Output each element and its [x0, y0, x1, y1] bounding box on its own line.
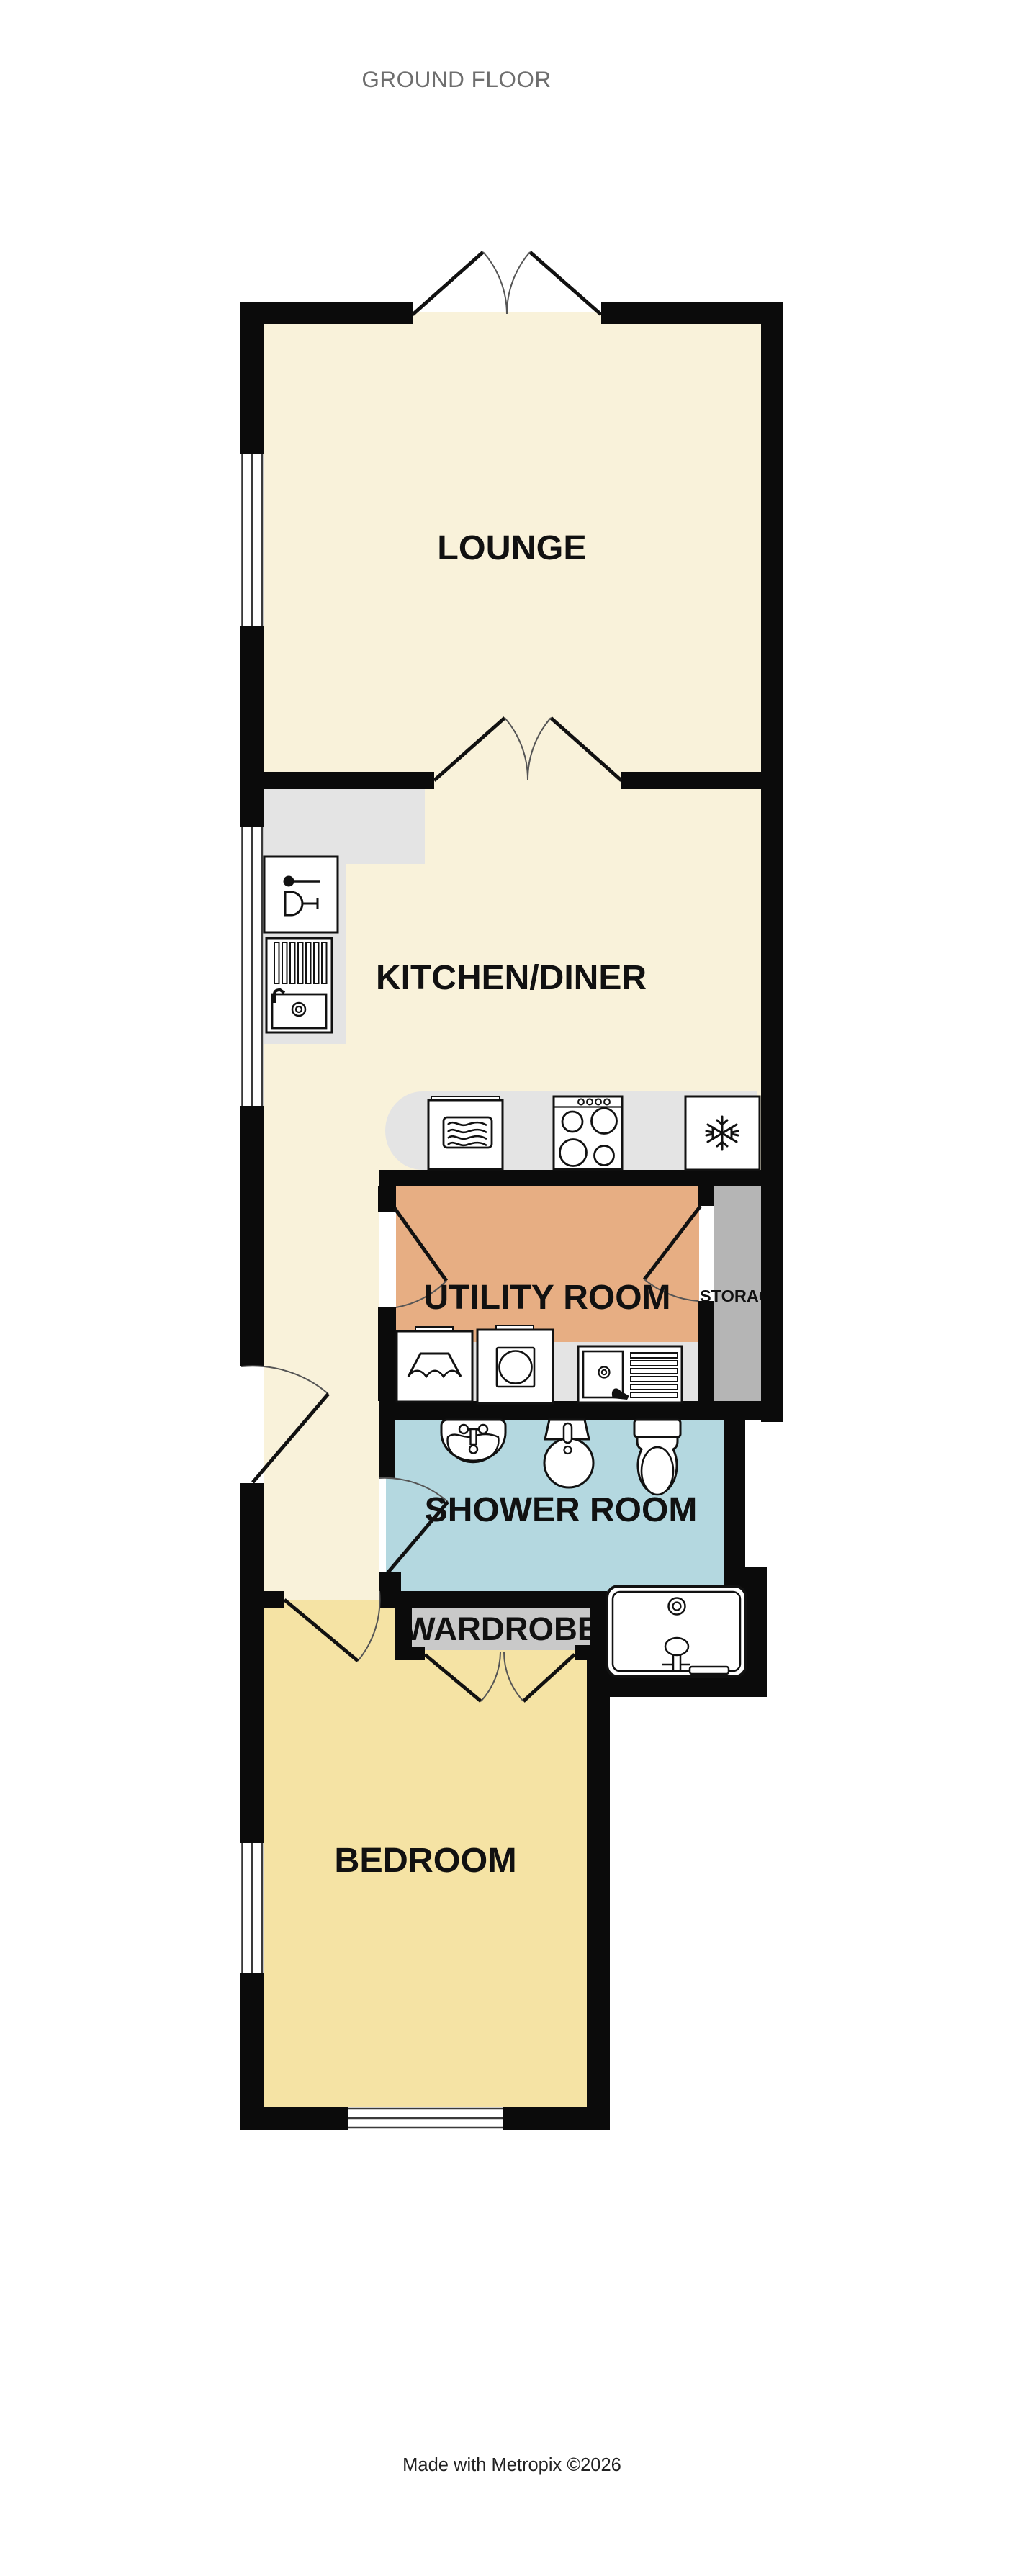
svg-text:KITCHEN/DINER: KITCHEN/DINER: [376, 959, 647, 997]
svg-text:SHOWER ROOM: SHOWER ROOM: [425, 1491, 698, 1529]
svg-text:WARDROBE: WARDROBE: [405, 1611, 599, 1647]
svg-text:GROUND FLOOR: GROUND FLOOR: [361, 66, 551, 92]
svg-text:Made with Metropix ©2026: Made with Metropix ©2026: [402, 2455, 621, 2475]
svg-text:BEDROOM: BEDROOM: [334, 1841, 516, 1880]
svg-text:LOUNGE: LOUNGE: [437, 528, 586, 567]
svg-text:UTILITY ROOM: UTILITY ROOM: [423, 1279, 670, 1317]
